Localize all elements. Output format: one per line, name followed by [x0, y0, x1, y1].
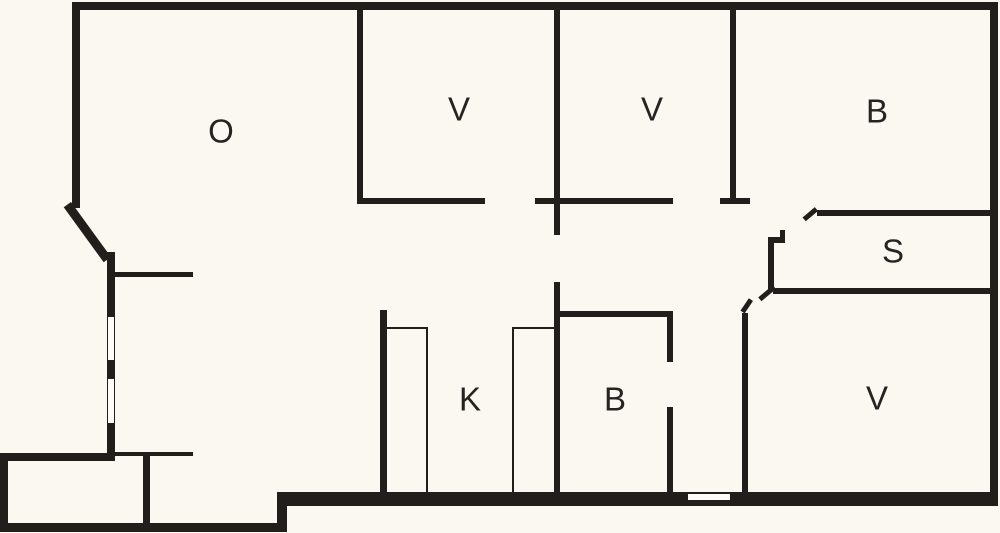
room-label-v: V — [866, 382, 888, 415]
floor-plan: OVVBSVBK — [0, 0, 1000, 533]
left-exterior-wall-upper — [72, 2, 80, 208]
entry-partition-wall — [113, 272, 193, 277]
kitchen-left-wall — [380, 310, 387, 492]
top-exterior-wall — [72, 2, 998, 10]
room-label-s: S — [882, 235, 904, 268]
bath-right-wall-upper — [667, 311, 673, 362]
room-label-o: O — [208, 115, 234, 148]
room-label-b: B — [866, 95, 888, 128]
s-closet-wall-nub — [780, 230, 785, 243]
bath-right-wall-lower — [667, 407, 673, 492]
door-tick-s-top — [803, 207, 818, 221]
bath-top-wall — [554, 311, 673, 317]
hall-wall — [742, 313, 748, 492]
extension-left-wall — [0, 453, 8, 532]
entry-partition-wall-lower — [113, 452, 193, 456]
v2-bottom-wall — [535, 198, 673, 204]
extension-divider-wall — [143, 455, 150, 525]
v1-bottom-wall — [357, 198, 485, 204]
window-left-upper — [107, 316, 115, 361]
room-label-v: V — [448, 93, 470, 126]
s-bottom-wall — [773, 288, 990, 294]
counter-left-line — [426, 327, 428, 492]
right-exterior-wall — [990, 2, 998, 506]
room-label-b: B — [604, 383, 626, 416]
v2-right-wall-cap — [720, 198, 750, 204]
door-tick-hall — [740, 298, 753, 313]
v2-right-wall — [730, 8, 736, 200]
room-label-k: K — [459, 383, 481, 416]
window-bottom — [687, 493, 731, 501]
left-corner-diagonal-wall — [64, 202, 111, 262]
room-label-v: V — [641, 93, 663, 126]
bottom-exterior-wall-main — [277, 492, 998, 506]
window-left-lower — [107, 378, 115, 424]
counter-right-line — [512, 327, 514, 492]
v1-left-wall — [357, 8, 363, 204]
s-top-wall — [817, 210, 990, 216]
extension-top-wall — [0, 453, 113, 461]
counter-right-top-line — [512, 327, 555, 329]
s-closet-wall-vertical — [768, 237, 774, 290]
counter-left-top-line — [386, 327, 428, 329]
